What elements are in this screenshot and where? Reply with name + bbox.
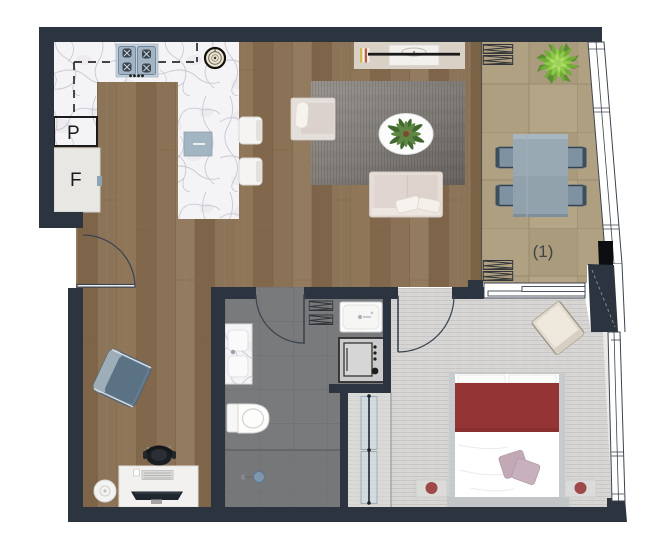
- svg-text:P: P: [67, 123, 80, 144]
- svg-text:(1): (1): [533, 242, 554, 261]
- svg-text:F: F: [70, 170, 82, 191]
